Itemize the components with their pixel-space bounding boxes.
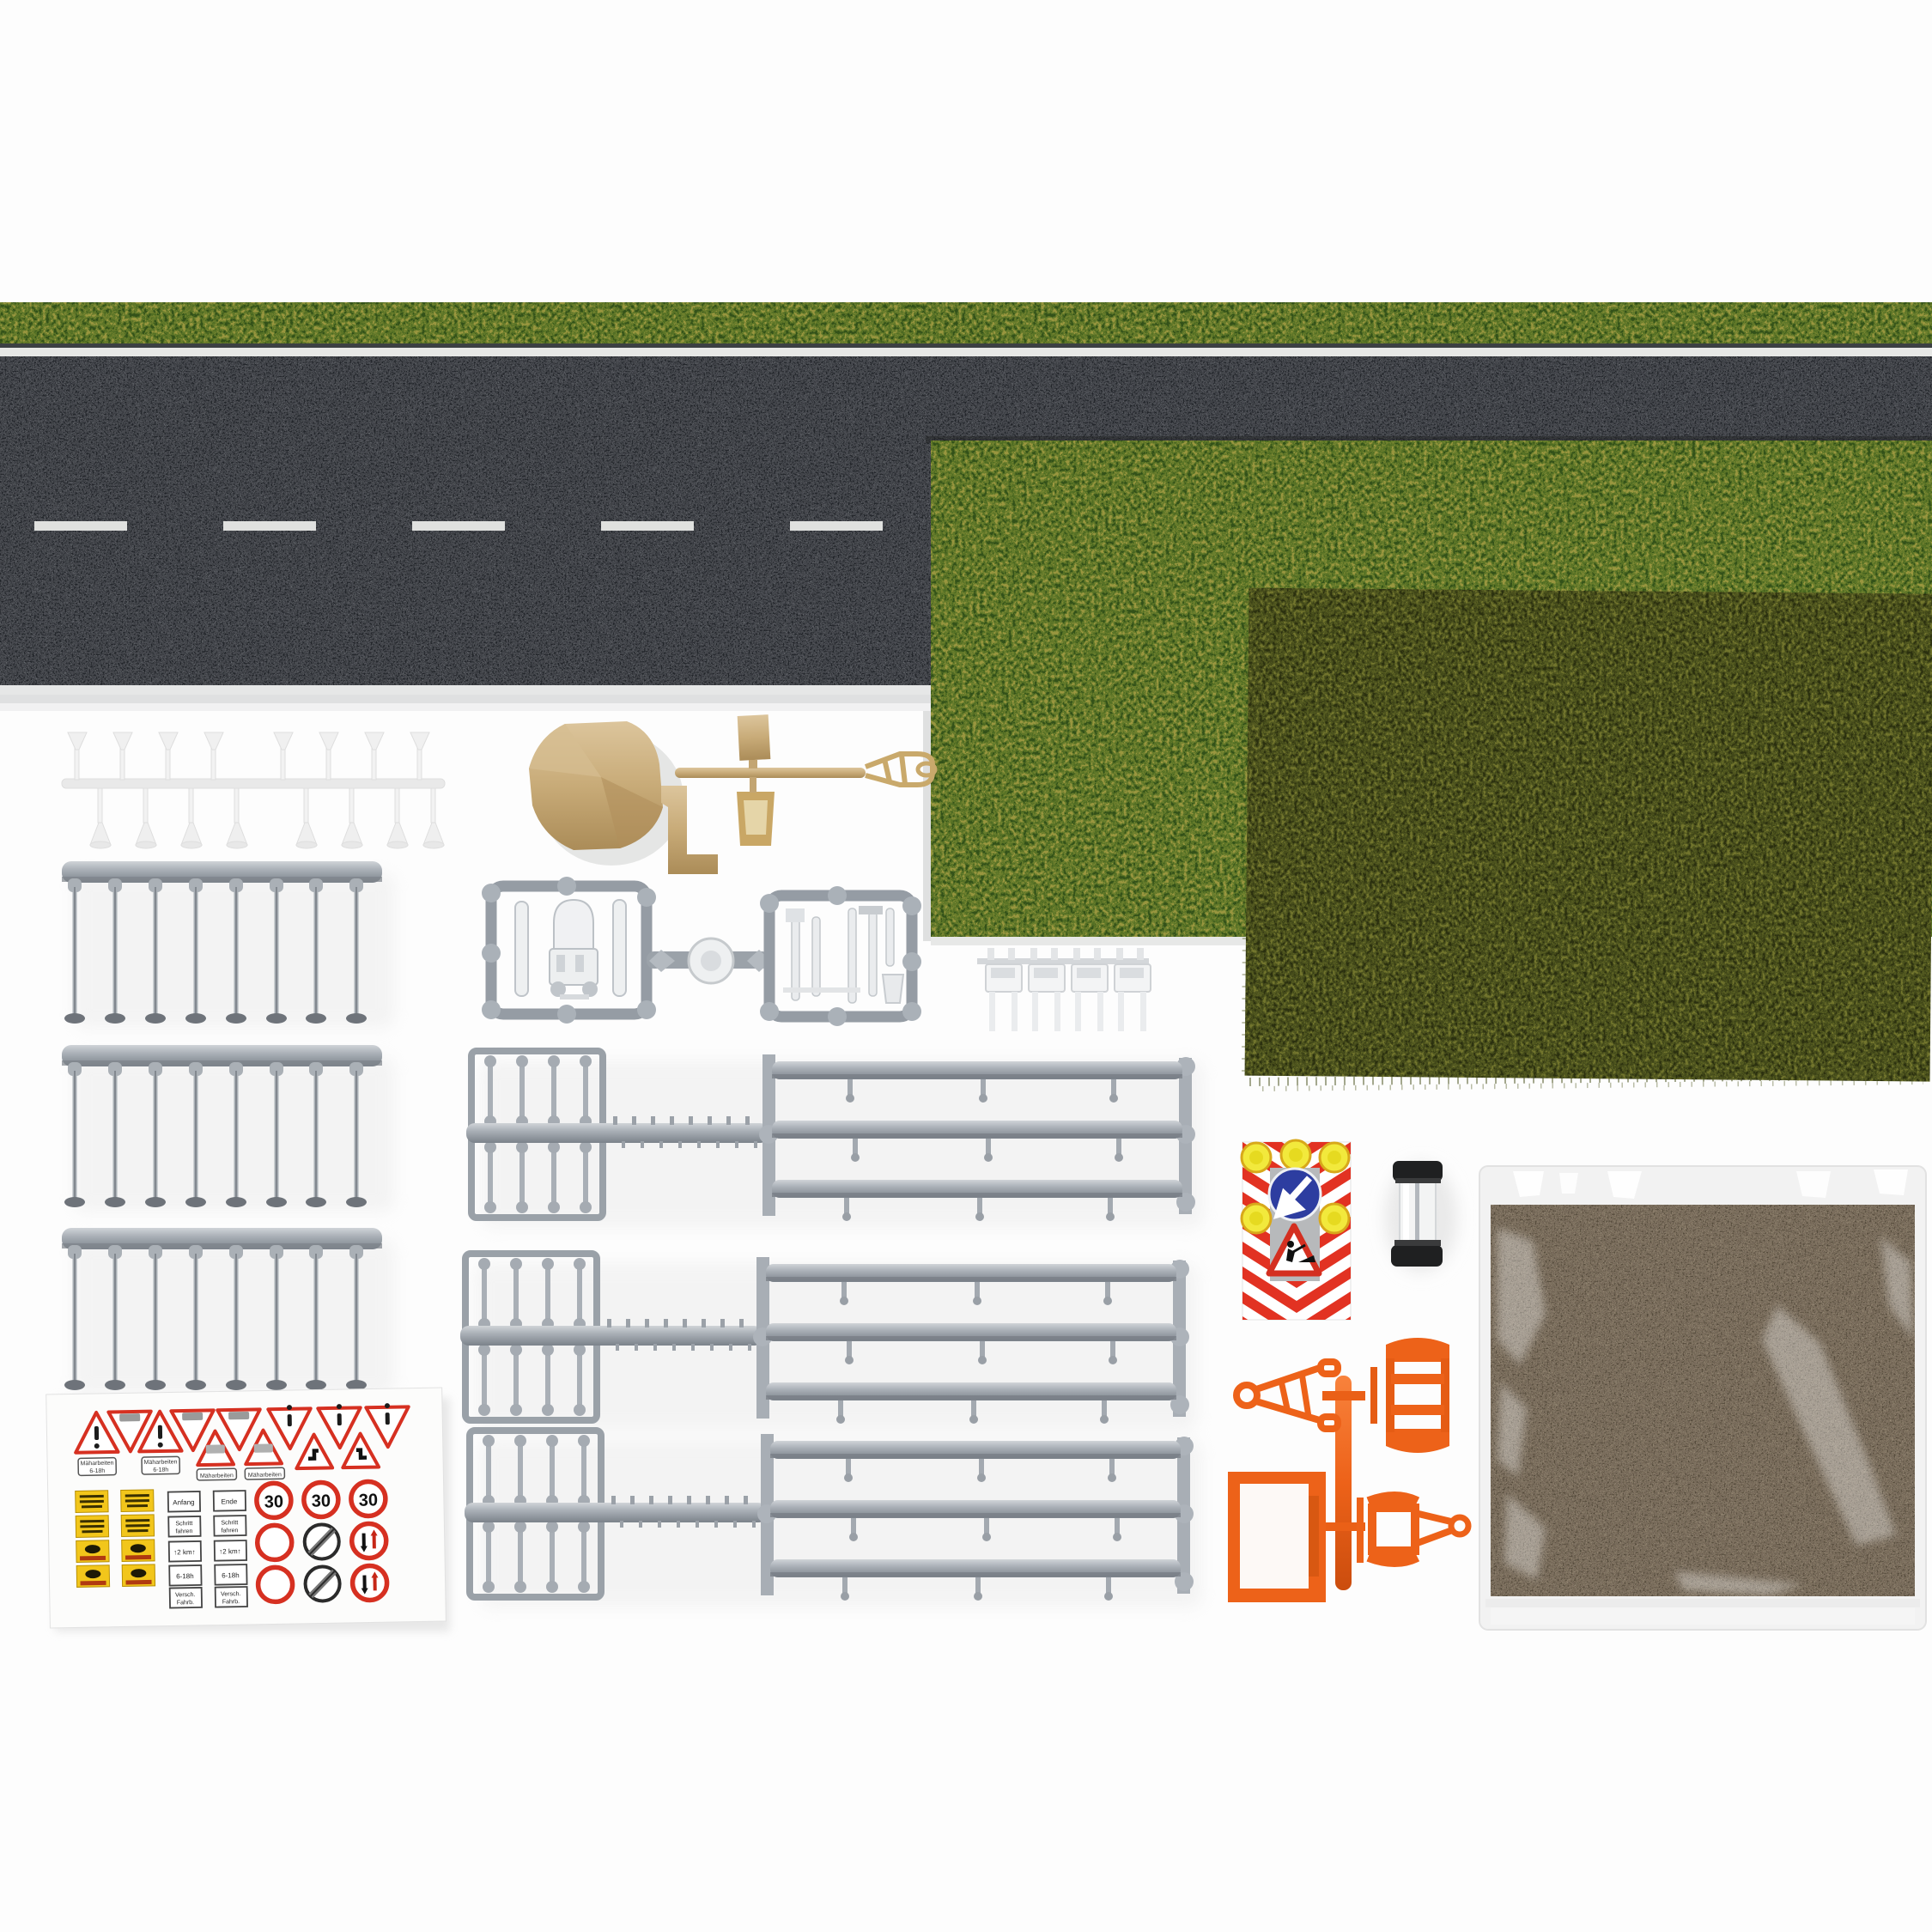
svg-text:Versch.: Versch. [175, 1592, 196, 1598]
svg-text:6-18h: 6-18h [222, 1571, 240, 1579]
svg-text:↑2 km↑: ↑2 km↑ [219, 1547, 240, 1555]
svg-text:6-18h: 6-18h [89, 1468, 105, 1474]
svg-text:Fahrb.: Fahrb. [222, 1599, 240, 1605]
svg-text:Anfang: Anfang [173, 1498, 195, 1506]
svg-text:Fahrb.: Fahrb. [177, 1600, 194, 1606]
svg-text:Schritt: Schritt [221, 1520, 238, 1526]
svg-text:↑2 km↑: ↑2 km↑ [173, 1548, 195, 1556]
svg-text:30: 30 [264, 1492, 284, 1511]
svg-text:30: 30 [359, 1491, 379, 1510]
svg-text:Versch.: Versch. [221, 1591, 241, 1597]
svg-text:Mäharbeiten: Mäharbeiten [81, 1461, 114, 1467]
svg-text:Mäharbeiten: Mäharbeiten [248, 1472, 282, 1479]
svg-text:Mäharbeiten: Mäharbeiten [200, 1473, 234, 1479]
svg-text:fahren: fahren [222, 1528, 239, 1534]
svg-text:Schritt: Schritt [175, 1521, 192, 1527]
svg-text:6-18h: 6-18h [176, 1572, 194, 1580]
svg-text:Mäharbeiten: Mäharbeiten [144, 1459, 178, 1466]
svg-text:fahren: fahren [176, 1528, 193, 1534]
svg-text:Ende: Ende [221, 1498, 237, 1505]
svg-text:6-18h: 6-18h [153, 1467, 168, 1473]
svg-text:30: 30 [312, 1492, 331, 1510]
